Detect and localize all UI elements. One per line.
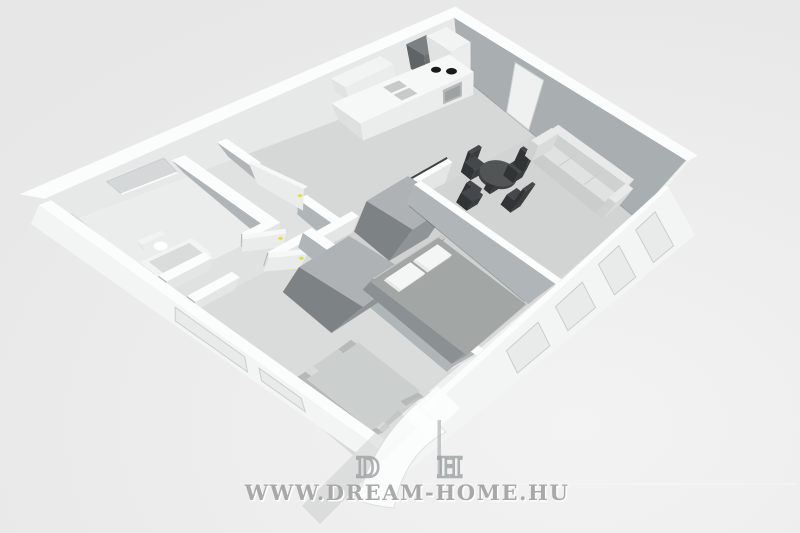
cooktop-knob <box>436 63 439 65</box>
floorplan-viewport: D H WWW.DREAM-HOME.HU WWW.DREAM-HOME.HU <box>0 0 800 533</box>
floorplan-3d-render: D H WWW.DREAM-HOME.HU WWW.DREAM-HOME.HU <box>0 0 800 533</box>
watermark-url: WWW.DREAM-HOME.HU <box>244 480 570 505</box>
toilet-bowl <box>154 242 168 251</box>
cooktop-burner-1 <box>431 67 441 73</box>
cooktop-burner-2 <box>446 68 457 74</box>
